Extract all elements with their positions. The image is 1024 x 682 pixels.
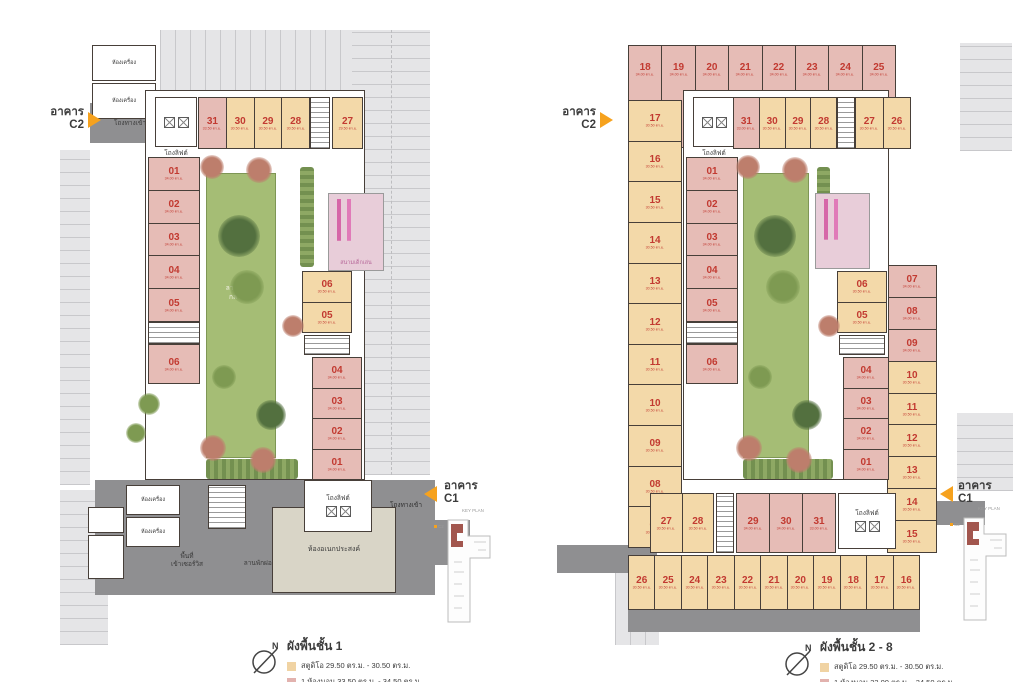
unit-25: 2530.50 ตร.ม. [654, 555, 681, 610]
building-c2-label: อาคารC2 [24, 106, 84, 132]
unit-31: 3133.00 ตร.ม. [733, 97, 760, 149]
unit-row-outer-bottom: 2630.50 ตร.ม.2530.50 ตร.ม.2430.50 ตร.ม.2… [628, 555, 920, 610]
unit-area: 34.00 ตร.ม. [165, 178, 184, 181]
studio-swatch [820, 663, 829, 672]
building-c1-arrow-icon [424, 486, 437, 502]
unit-area: 30.50 ตร.ม. [738, 587, 757, 590]
unit-number: 21 [740, 62, 751, 73]
unit-28: 2830.50 ตร.ม. [810, 97, 837, 149]
unit-area: 34.00 ตร.ม. [744, 527, 763, 530]
unit-number: 02 [860, 426, 871, 437]
unit-21: 2130.50 ตร.ม. [760, 555, 787, 610]
unit-05: 0530.50 ตร.ม. [837, 302, 887, 334]
unit-col-outer-west: 1730.50 ตร.ม.1630.50 ตร.ม.1530.50 ตร.ม.1… [628, 100, 682, 548]
building-c1-arrow-icon [940, 486, 953, 502]
stairs [716, 493, 734, 553]
unit-20: 2030.50 ตร.ม. [787, 555, 814, 610]
playground: สนามเด็กเล่น [328, 193, 384, 271]
unit-number: 07 [906, 274, 917, 285]
unit-26: 2630.50 ตร.ม. [883, 97, 912, 149]
unit-area: 30.50 ตร.ม. [318, 291, 337, 294]
unit-area: 34.00 ตร.ม. [328, 377, 347, 380]
unit-row-top: 3133.50 ตร.ม.3030.50 ตร.ม.2930.50 ตร.ม.2… [198, 97, 310, 149]
lift-icon [869, 521, 880, 532]
tree-icon [212, 365, 236, 389]
unit-number: 28 [692, 516, 703, 527]
tree-icon [782, 157, 808, 183]
service-area-label: พื้นที่เข้าเซอร์วิส [152, 553, 222, 569]
unit-number: 02 [168, 199, 179, 210]
lift-icon [326, 506, 337, 517]
unit-number: 31 [207, 116, 218, 127]
unit-04: 0434.00 ตร.ม. [148, 255, 200, 289]
unit-18: 1830.50 ตร.ม. [840, 555, 867, 610]
unit-13: 1330.50 ตร.ม. [628, 263, 682, 305]
unit-29: 2930.50 ตร.ม. [254, 97, 283, 149]
lift-hall-bottom-label: โถงลิฟต์ [855, 510, 878, 518]
unit-area: 33.00 ตร.ม. [810, 527, 829, 530]
unit-03: 0334.00 ตร.ม. [686, 223, 738, 257]
unit-06: 0634.00 ตร.ม. [148, 344, 200, 384]
unit-06: 0630.50 ตร.ม. [837, 271, 887, 303]
tree-icon [250, 447, 276, 473]
tree-icon [818, 315, 840, 337]
unit-area: 30.50 ตร.ม. [853, 291, 872, 294]
tree-icon [138, 393, 160, 415]
unit-area: 30.50 ตร.ม. [765, 587, 784, 590]
unit-06: 0630.50 ตร.ม. [302, 271, 352, 303]
stairs [837, 97, 855, 149]
unit-28: 2830.50 ตร.ม. [682, 493, 715, 553]
unit-22: 2230.50 ตร.ม. [734, 555, 761, 610]
unit-number: 14 [649, 235, 660, 246]
north-label: N [805, 643, 812, 653]
unit-number: 15 [649, 195, 660, 206]
unit-number: 04 [706, 265, 717, 276]
plan-1-caption: ผังพื้นชั้น 1 สตูดิโอ 29.50 ตร.ม. - 30.5… [287, 637, 497, 682]
unit-number: 12 [649, 317, 660, 328]
unit-number: 16 [649, 154, 660, 165]
unit-number: 30 [780, 516, 791, 527]
unit-number: 10 [906, 370, 917, 381]
unit-number: 04 [331, 365, 342, 376]
unit-30: 3034.00 ตร.ม. [769, 493, 803, 553]
unit-area: 33.50 ตร.ม. [203, 127, 222, 130]
unit-area: 34.00 ตร.ม. [703, 244, 722, 247]
unit-06: 0634.00 ตร.ม. [686, 344, 738, 384]
key-plan: KEY PLAN C2 C1 [434, 506, 496, 624]
unit-11: 1130.50 ตร.ม. [887, 393, 937, 426]
unit-number: 22 [742, 575, 753, 586]
unit-17: 1730.50 ตร.ม. [866, 555, 893, 610]
unit-number: 01 [860, 457, 871, 468]
building-c2-arrow-icon [600, 112, 613, 128]
unit-13: 1330.50 ตร.ม. [887, 456, 937, 489]
unit-number: 31 [813, 516, 824, 527]
machine-room: ห้องเครื่อง [126, 485, 180, 515]
building-c2-arrow-icon [88, 112, 101, 128]
unit-number: 09 [906, 338, 917, 349]
unit-area: 30.50 ตร.ม. [903, 477, 922, 480]
tree-icon [736, 155, 760, 179]
unit-04: 0434.00 ตร.ม. [686, 255, 738, 289]
unit-12: 1230.50 ตร.ม. [887, 424, 937, 457]
unit-05: 0534.00 ตร.ม. [686, 288, 738, 322]
floor-plan-1: โถงทางเข้า ห้องเครื่อง ห้องเครื่อง โถงลิ… [60, 15, 470, 660]
building-c1-label: อาคารC1 [958, 480, 1018, 506]
unit-26: 2630.50 ตร.ม. [628, 555, 655, 610]
unit-area: 30.50 ตร.ม. [903, 413, 922, 416]
unit-07: 0734.00 ตร.ม. [887, 265, 937, 298]
unit-number: 06 [706, 357, 717, 368]
unit-10: 1030.50 ตร.ม. [887, 361, 937, 394]
playground [815, 193, 870, 269]
plan-2-8-title: ผังพื้นชั้น 2 - 8 [820, 638, 1024, 657]
unit-16: 1630.50 ตร.ม. [628, 141, 682, 183]
unit-number: 17 [649, 113, 660, 124]
unit-col-east-lower: 0434.00 ตร.ม.0334.00 ตร.ม.0234.00 ตร.ม.0… [312, 357, 362, 480]
unit-col-inner-west-end: 0634.00 ตร.ม. [686, 344, 738, 384]
unit-area: 34.00 ตร.ม. [703, 276, 722, 279]
onebed-legend-label: 1 ห้องนอน 33.50 ตร.ม. - 34.50 ตร.ม. [301, 676, 422, 682]
unit-area: 34.00 ตร.ม. [857, 407, 876, 410]
unit-number: 12 [906, 433, 917, 444]
stairs [686, 322, 738, 344]
unit-03: 0334.00 ตร.ม. [148, 223, 200, 257]
tree-icon [786, 447, 812, 473]
tree-icon [748, 365, 772, 389]
unit-area: 34.00 ตร.ม. [703, 211, 722, 214]
unit-09: 0930.50 ตร.ม. [628, 425, 682, 467]
unit-area: 34.00 ตร.ม. [857, 438, 876, 441]
unit-area: 30.50 ตร.ม. [887, 127, 906, 130]
stairs [148, 322, 200, 344]
unit-area: 34.00 ตร.ม. [836, 74, 855, 77]
north-label: N [272, 641, 279, 651]
unit-number: 19 [673, 62, 684, 73]
lifts [326, 506, 351, 517]
unit-col-west: 0134.00 ตร.ม.0234.00 ตร.ม.0334.00 ตร.ม.0… [148, 157, 200, 322]
unit-area: 30.50 ตร.ม. [646, 328, 665, 331]
unit-area: 30.50 ตร.ม. [657, 527, 676, 530]
unit-29: 2934.00 ตร.ม. [736, 493, 770, 553]
unit-02: 0234.00 ตร.ม. [843, 418, 889, 450]
unit-col-inner-east-lower: 0434.00 ตร.ม.0334.00 ตร.ม.0234.00 ตร.ม.0… [843, 357, 889, 480]
unit-number: 29 [262, 116, 273, 127]
lift-icon [340, 506, 351, 517]
unit-area: 34.00 ตร.ม. [703, 309, 722, 312]
unit-area: 30.50 ตร.ม. [791, 587, 810, 590]
studio-legend-label: สตูดิโอ 29.50 ตร.ม. - 30.50 ตร.ม. [301, 660, 410, 672]
unit-col-east-upper: 0630.50 ตร.ม.0530.50 ตร.ม. [302, 271, 352, 333]
unit-number: 14 [906, 497, 917, 508]
unit-number: 04 [860, 365, 871, 376]
driveway [628, 610, 920, 632]
unit-number: 30 [767, 116, 778, 127]
legend-onebed: 1 ห้องนอน 33.50 ตร.ม. - 34.50 ตร.ม. [287, 676, 497, 682]
unit-number: 10 [649, 398, 660, 409]
unit-number: 18 [640, 62, 651, 73]
tree-icon [200, 435, 226, 461]
unit-number: 19 [821, 575, 832, 586]
unit-number: 11 [907, 402, 918, 413]
machine-room-label: ห้องเครื่อง [141, 529, 165, 536]
unit-area: 34.00 ตร.ม. [703, 74, 722, 77]
unit-number: 02 [706, 199, 717, 210]
unit-area: 34.00 ตร.ม. [736, 74, 755, 77]
hedge [300, 167, 314, 267]
lift-icon [855, 521, 866, 532]
unit-area: 30.50 ตร.ม. [646, 287, 665, 290]
plan-1-title: ผังพื้นชั้น 1 [287, 637, 497, 656]
unit-number: 02 [331, 426, 342, 437]
unit-01: 0134.00 ตร.ม. [686, 157, 738, 191]
unit-area: 30.50 ตร.ม. [870, 587, 889, 590]
unit-number: 26 [636, 575, 647, 586]
unit-01: 0134.00 ตร.ม. [843, 449, 889, 481]
unit-area: 30.50 ตร.ม. [685, 587, 704, 590]
unit-area: 30.50 ตร.ม. [903, 509, 922, 512]
unit-row-inner-top: 3133.00 ตร.ม.3030.50 ตร.ม.2930.50 ตร.ม.2… [733, 97, 837, 149]
unit-11: 1130.50 ตร.ม. [628, 344, 682, 386]
unit-29: 2930.50 ตร.ม. [785, 97, 812, 149]
tree-icon [230, 270, 264, 304]
unit-col-west-end: 0634.00 ตร.ม. [148, 344, 200, 384]
unit-row-inner-top-end: 2730.50 ตร.ม.2630.50 ตร.ม. [855, 97, 911, 149]
unit-area: 34.00 ตร.ม. [328, 407, 347, 410]
unit-24: 2430.50 ตร.ม. [681, 555, 708, 610]
unit-row-top-end: 2729.50 ตร.ม. [332, 97, 363, 149]
unit-number: 06 [321, 279, 332, 290]
lift-icon [178, 117, 189, 128]
unit-area: 30.50 ตร.ม. [903, 445, 922, 448]
unit-area: 34.00 ตร.ม. [165, 309, 184, 312]
unit-04: 0434.00 ตร.ม. [843, 357, 889, 389]
unit-area: 34.00 ตร.ม. [165, 276, 184, 279]
unit-01: 0134.00 ตร.ม. [148, 157, 200, 191]
unit-area: 30.50 ตร.ม. [763, 127, 782, 130]
building-c2-label: อาคารC2 [540, 106, 596, 132]
unit-number: 28 [290, 116, 301, 127]
unit-area: 29.50 ตร.ม. [338, 127, 357, 130]
unit-area: 30.50 ตร.ม. [632, 587, 651, 590]
unit-area: 34.00 ตร.ม. [803, 74, 822, 77]
lift-core [693, 97, 735, 147]
unit-row-bottom-mid: 2934.00 ตร.ม.3034.00 ตร.ม.3133.00 ตร.ม. [736, 493, 836, 553]
unit-number: 27 [864, 116, 875, 127]
unit-area: 34.00 ตร.ม. [165, 244, 184, 247]
utility-room [88, 507, 124, 533]
legend-studio: สตูดิโอ 29.50 ตร.ม. - 30.50 ตร.ม. [287, 660, 497, 672]
unit-number: 06 [168, 357, 179, 368]
lift-icon [716, 117, 727, 128]
unit-number: 13 [649, 276, 660, 287]
tree-icon [200, 155, 224, 179]
unit-area: 30.50 ตร.ม. [231, 127, 250, 130]
stairs [208, 485, 246, 529]
unit-area: 34.00 ตร.ม. [669, 74, 688, 77]
machine-room: ห้องเครื่อง [126, 517, 180, 547]
utility-room [88, 535, 124, 579]
parking-area [960, 43, 1012, 151]
unit-number: 29 [747, 516, 758, 527]
unit-number: 09 [649, 438, 660, 449]
unit-number: 03 [860, 396, 871, 407]
onebed-legend-label: 1 ห้องนอน 33.00 ตร.ม. - 34.50 ตร.ม. [834, 677, 955, 682]
unit-area: 30.50 ตร.ม. [814, 127, 833, 130]
unit-area: 30.50 ตร.ม. [659, 587, 678, 590]
unit-area: 34.00 ตร.ม. [777, 527, 796, 530]
unit-area: 34.00 ตร.ม. [857, 468, 876, 471]
unit-28: 2830.50 ตร.ม. [281, 97, 310, 149]
unit-number: 26 [891, 116, 902, 127]
unit-area: 30.50 ตร.ม. [286, 127, 305, 130]
tree-icon [792, 400, 822, 430]
unit-area: 30.50 ตร.ม. [259, 127, 278, 130]
unit-number: 03 [331, 396, 342, 407]
unit-area: 30.50 ตร.ม. [646, 247, 665, 250]
unit-area: 34.00 ตร.ม. [903, 285, 922, 288]
lift-core: โถงลิฟต์ [304, 480, 372, 532]
unit-area: 30.50 ตร.ม. [818, 587, 837, 590]
unit-number: 27 [342, 116, 353, 127]
onebed-swatch [820, 679, 829, 682]
stairs [310, 97, 330, 149]
unit-09: 0934.00 ตร.ม. [887, 329, 937, 362]
key-plan-label: KEY PLAN [978, 506, 1000, 511]
unit-area: 30.50 ตร.ม. [318, 321, 337, 324]
tree-icon [126, 423, 146, 443]
unit-10: 1030.50 ตร.ม. [628, 384, 682, 426]
unit-19: 1930.50 ตร.ม. [813, 555, 840, 610]
lift-icon [164, 117, 175, 128]
unit-col-inner-east-upper: 0630.50 ตร.ม.0530.50 ตร.ม. [837, 271, 887, 333]
unit-27: 2730.50 ตร.ม. [650, 493, 683, 553]
unit-row-bottom-pair: 2730.50 ตร.ม.2830.50 ตร.ม. [650, 493, 714, 553]
unit-col-inner-west: 0134.00 ตร.ม.0234.00 ตร.ม.0334.00 ตร.ม.0… [686, 157, 738, 322]
unit-number: 15 [906, 529, 917, 540]
unit-area: 30.50 ตร.ม. [897, 587, 916, 590]
unit-area: 30.50 ตร.ม. [903, 541, 922, 544]
unit-area: 30.50 ตร.ม. [860, 127, 879, 130]
unit-number: 28 [818, 116, 829, 127]
unit-area: 33.00 ตร.ม. [737, 127, 756, 130]
unit-number: 20 [795, 575, 806, 586]
key-plan-drawing [434, 514, 496, 632]
unit-number: 11 [650, 357, 661, 368]
unit-area: 30.50 ตร.ม. [903, 381, 922, 384]
unit-02: 0234.00 ตร.ม. [312, 418, 362, 450]
unit-number: 05 [321, 310, 332, 321]
unit-area: 34.00 ตร.ม. [869, 74, 888, 77]
unit-02: 0234.00 ตร.ม. [148, 190, 200, 224]
tree-icon [256, 400, 286, 430]
unit-number: 18 [848, 575, 859, 586]
studio-swatch [287, 662, 296, 671]
unit-23: 2330.50 ตร.ม. [707, 555, 734, 610]
unit-number: 08 [906, 306, 917, 317]
unit-area: 30.50 ตร.ม. [646, 450, 665, 453]
lift-core [155, 97, 197, 147]
unit-number: 01 [168, 166, 179, 177]
unit-area: 30.50 ตร.ม. [646, 409, 665, 412]
tree-icon [246, 157, 272, 183]
unit-number: 22 [773, 62, 784, 73]
lift-icon [702, 117, 713, 128]
machine-room-label: ห้องเครื่อง [112, 98, 136, 105]
stairs [304, 335, 350, 355]
unit-number: 03 [706, 232, 717, 243]
unit-area: 30.50 ตร.ม. [844, 587, 863, 590]
unit-number: 05 [168, 298, 179, 309]
unit-04: 0434.00 ตร.ม. [312, 357, 362, 389]
plan-2-8-caption: ผังพื้นชั้น 2 - 8 สตูดิโอ 29.50 ตร.ม. - … [820, 638, 1024, 682]
multipurpose-room-label: ห้องอเนกประสงค์ [308, 546, 360, 555]
unit-30: 3030.50 ตร.ม. [759, 97, 786, 149]
unit-area: 34.00 ตร.ม. [165, 368, 184, 371]
unit-number: 08 [649, 479, 660, 490]
legend-onebed: 1 ห้องนอน 33.00 ตร.ม. - 34.50 ตร.ม. [820, 677, 1024, 682]
floor-plan-page: โถงทางเข้า ห้องเครื่อง ห้องเครื่อง โถงลิ… [0, 0, 1024, 682]
unit-number: 24 [689, 575, 700, 586]
tree-icon [218, 215, 260, 257]
unit-number: 05 [706, 298, 717, 309]
unit-area: 34.00 ตร.ม. [769, 74, 788, 77]
unit-number: 04 [168, 265, 179, 276]
unit-03: 0334.00 ตร.ม. [843, 388, 889, 420]
tree-icon [754, 215, 796, 257]
unit-area: 34.00 ตร.ม. [328, 468, 347, 471]
tree-icon [736, 435, 762, 461]
unit-number: 24 [840, 62, 851, 73]
unit-30: 3030.50 ตร.ม. [226, 97, 255, 149]
unit-area: 34.00 ตร.ม. [903, 349, 922, 352]
unit-number: 23 [716, 575, 727, 586]
unit-17: 1730.50 ตร.ม. [628, 100, 682, 142]
unit-area: 30.50 ตร.ม. [688, 527, 707, 530]
unit-12: 1230.50 ตร.ม. [628, 303, 682, 345]
unit-number: 21 [768, 575, 779, 586]
entrance-hall-bottom-label: โถงทางเข้า [378, 502, 434, 510]
key-plan-label: KEY PLAN [462, 508, 484, 513]
machine-room: ห้องเครื่อง [92, 45, 156, 81]
lift-core: โถงลิฟต์ [838, 493, 896, 549]
unit-number: 20 [706, 62, 717, 73]
unit-area: 34.00 ตร.ม. [703, 178, 722, 181]
unit-area: 30.50 ตร.ม. [853, 321, 872, 324]
unit-area: 34.00 ตร.ม. [903, 317, 922, 320]
unit-31: 3133.50 ตร.ม. [198, 97, 227, 149]
unit-area: 34.00 ตร.ม. [165, 211, 184, 214]
onebed-swatch [287, 678, 296, 682]
unit-02: 0234.00 ตร.ม. [686, 190, 738, 224]
machine-room-label: ห้องเครื่อง [112, 60, 136, 67]
lift-hall-bottom-label: โถงลิฟต์ [326, 495, 349, 503]
unit-number: 31 [741, 116, 752, 127]
lifts [855, 521, 880, 532]
unit-area: 34.00 ตร.ม. [857, 377, 876, 380]
unit-area: 34.00 ตร.ม. [703, 368, 722, 371]
unit-03: 0334.00 ตร.ม. [312, 388, 362, 420]
key-plan: KEY PLAN C2 C1 [950, 504, 1012, 622]
unit-number: 17 [874, 575, 885, 586]
parking-centerline [391, 30, 392, 475]
machine-room-label: ห้องเครื่อง [141, 497, 165, 504]
unit-number: 25 [873, 62, 884, 73]
unit-area: 30.50 ตร.ม. [712, 587, 731, 590]
stairs [839, 335, 885, 355]
legend-studio: สตูดิโอ 29.50 ตร.ม. - 30.50 ตร.ม. [820, 661, 1024, 673]
